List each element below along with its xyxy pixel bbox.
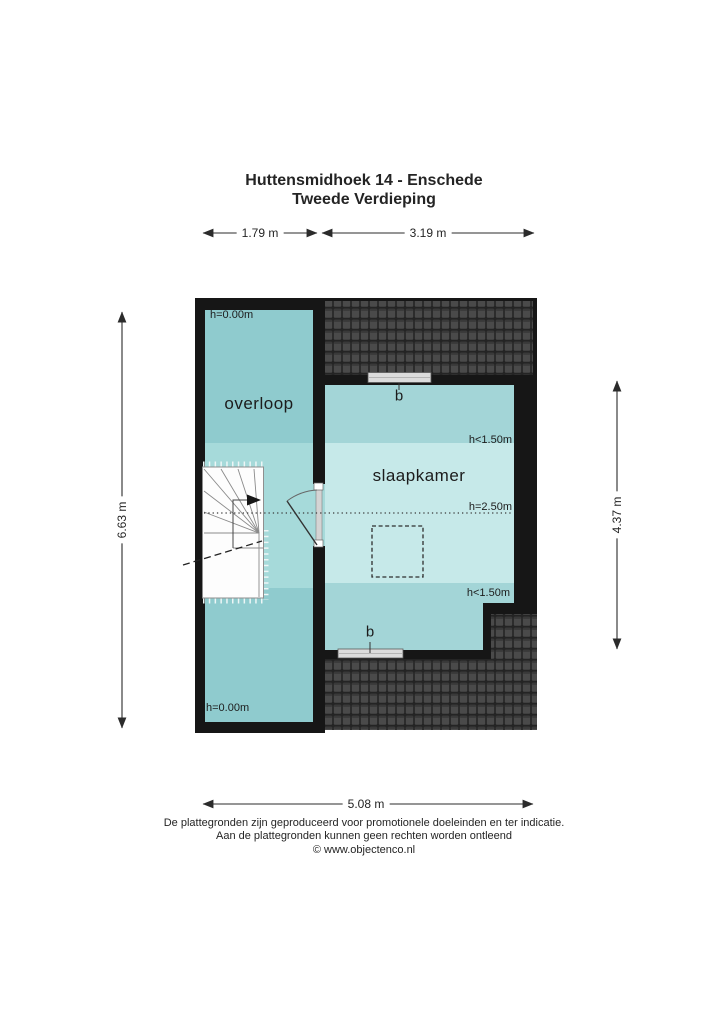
- dimension-bottom: 5.08 m: [343, 797, 390, 811]
- window-label-top: b: [395, 388, 403, 405]
- dimension-left: 6.63 m: [115, 497, 129, 544]
- floorplan-page: Huttensmidhoek 14 - Enschede Tweede Verd…: [0, 0, 728, 1030]
- door-opening: [313, 483, 325, 547]
- room-label-overloop: overloop: [224, 394, 293, 414]
- disclaimer-line-1: De plattegronden zijn geproduceerd voor …: [0, 817, 728, 830]
- room-label-slaapkamer: slaapkamer: [373, 466, 466, 486]
- disclaimer-line-2: Aan de plattegronden kunnen geen rechten…: [0, 830, 728, 843]
- height-label-overloop-top: h=0.00m: [210, 309, 253, 321]
- dimension-top-right: 3.19 m: [405, 226, 452, 240]
- dimension-top-left: 1.79 m: [237, 226, 284, 240]
- window-label-bottom: b: [366, 624, 374, 641]
- dimension-right: 4.37 m: [610, 492, 624, 539]
- credit-line: © www.objectenco.nl: [0, 844, 728, 857]
- height-label-overloop-bottom: h=0.00m: [206, 702, 249, 714]
- roof-hatch-top: [315, 298, 537, 377]
- footer-disclaimer: De plattegronden zijn geproduceerd voor …: [0, 817, 728, 857]
- height-label-slaapkamer-upper: h<1.50m: [469, 434, 512, 446]
- height-label-slaapkamer-lower: h<1.50m: [467, 587, 510, 599]
- height-label-slaapkamer-center: h=2.50m: [469, 501, 512, 513]
